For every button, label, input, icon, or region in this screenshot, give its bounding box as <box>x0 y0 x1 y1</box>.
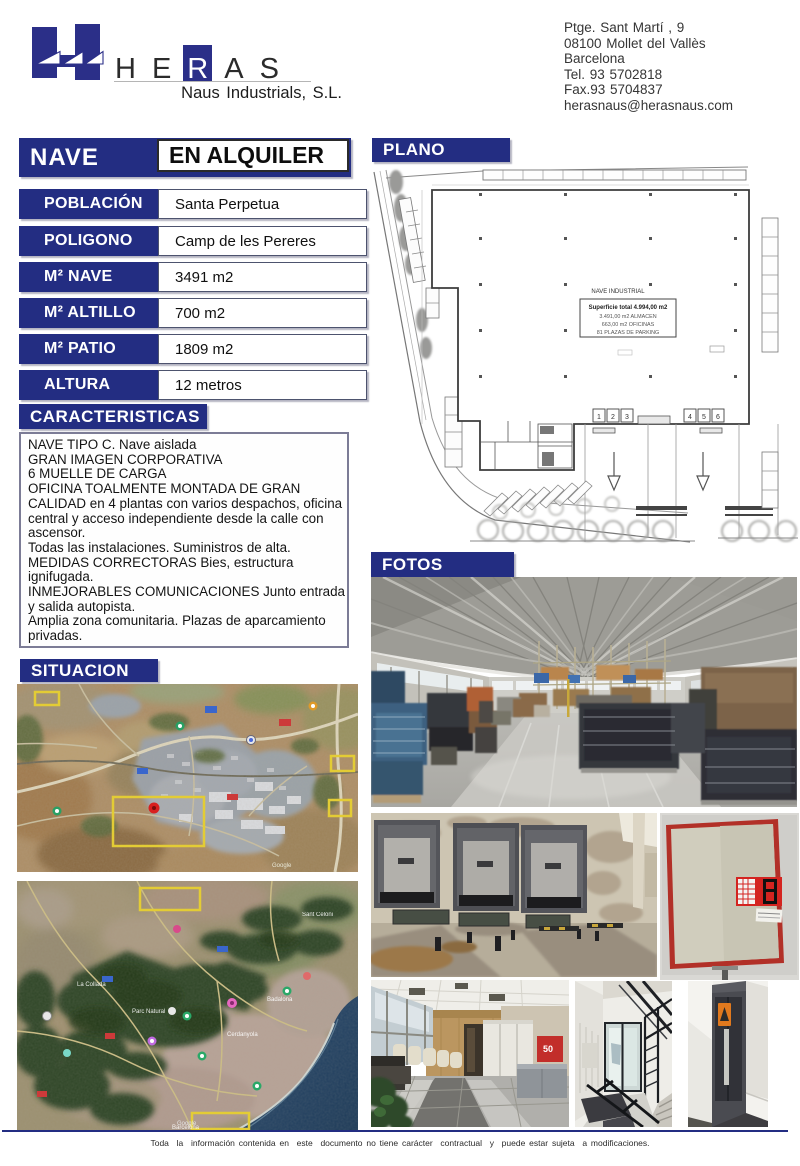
svg-text:4: 4 <box>688 414 692 421</box>
svg-text:Badalona: Badalona <box>267 997 293 1003</box>
svg-text:3: 3 <box>625 414 629 421</box>
svg-text:663,00 m2 OFICINAS: 663,00 m2 OFICINAS <box>602 322 655 328</box>
svg-text:3.491,00 m2 ALMACEN: 3.491,00 m2 ALMACEN <box>599 314 656 320</box>
svg-text:Superficie total 4.994,00 m2: Superficie total 4.994,00 m2 <box>589 305 668 311</box>
svg-text:81 PLAZAS DE PARKING: 81 PLAZAS DE PARKING <box>597 330 660 336</box>
svg-text:Google: Google <box>272 863 292 869</box>
svg-text:Sant Celoni: Sant Celoni <box>302 912 333 918</box>
svg-text:2: 2 <box>611 414 615 421</box>
svg-text:1: 1 <box>597 414 601 421</box>
svg-text:5: 5 <box>702 414 706 421</box>
svg-text:Google: Google <box>177 1121 197 1127</box>
svg-text:Cerdanyola: Cerdanyola <box>227 1032 258 1038</box>
svg-text:NAVE INDUSTRIAL: NAVE INDUSTRIAL <box>591 289 645 295</box>
svg-text:La Collada: La Collada <box>77 982 106 988</box>
svg-text:6: 6 <box>716 414 720 421</box>
svg-text:Parc Natural: Parc Natural <box>132 1009 165 1015</box>
svg-text:50: 50 <box>543 1044 553 1054</box>
